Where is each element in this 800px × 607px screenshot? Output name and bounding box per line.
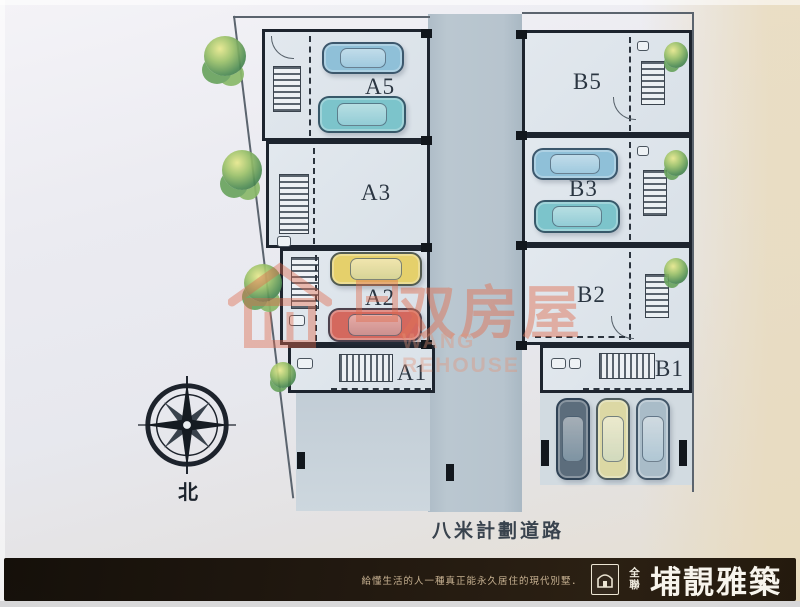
tree-icon xyxy=(664,258,688,284)
car-glass xyxy=(340,48,387,68)
garage-front-line xyxy=(309,36,311,136)
car-icon xyxy=(534,200,620,233)
wall-post xyxy=(421,243,432,252)
garage-front-line xyxy=(313,148,315,244)
garage-front-line xyxy=(315,255,317,341)
car-icon xyxy=(596,398,630,480)
stairs xyxy=(339,354,393,382)
footer-slogan: 給懂生活的人一種真正能永久居住的現代別墅． xyxy=(361,573,582,587)
gate-post xyxy=(297,452,305,469)
brand-name: 埔靚雅築 xyxy=(650,557,782,602)
bath-fixture xyxy=(637,41,649,51)
car-icon xyxy=(556,398,590,480)
wall-post xyxy=(516,241,527,250)
garage-front-line xyxy=(583,388,683,390)
road-label: 八米計劃道路 xyxy=(432,516,564,543)
photo-edge-left xyxy=(0,0,5,607)
bath-fixture xyxy=(277,236,291,247)
gate-post xyxy=(541,440,549,466)
tree-icon xyxy=(664,150,688,176)
bath-fixture xyxy=(569,358,581,369)
wall-post xyxy=(421,29,432,38)
tree-icon xyxy=(270,362,296,388)
stairs xyxy=(641,61,665,105)
photo-edge-top xyxy=(0,0,800,5)
car-icon xyxy=(322,42,404,74)
boundary-line-top xyxy=(233,16,430,18)
car-icon xyxy=(636,398,670,480)
wall-post xyxy=(516,131,527,140)
bath-fixture xyxy=(551,358,566,369)
photo-bottom-strip xyxy=(0,601,800,607)
unit-label: A3 xyxy=(361,180,391,206)
compass-rose-icon xyxy=(138,376,236,474)
wall-post xyxy=(516,30,527,39)
site-plan-photo: { "plan": { "units": [ {"label": "A5"}, … xyxy=(0,0,800,607)
brand-logo-icon xyxy=(591,564,619,595)
unit-A1: A1 xyxy=(288,345,435,393)
bath-fixture xyxy=(289,315,305,326)
wall-post xyxy=(421,136,432,145)
car-glass xyxy=(350,258,403,280)
unit-A3: A3 xyxy=(266,141,430,248)
tree-icon xyxy=(244,264,282,302)
gate-post xyxy=(679,440,687,466)
car-icon xyxy=(532,148,618,180)
driveway-pavement xyxy=(296,393,430,511)
stairs xyxy=(273,66,301,112)
car-glass xyxy=(642,416,664,463)
car-glass xyxy=(337,103,387,127)
car-glass xyxy=(348,314,402,336)
wall-post xyxy=(421,340,432,349)
stairs xyxy=(599,353,655,379)
boundary-line-right xyxy=(692,12,694,492)
garage-front-line xyxy=(535,336,625,338)
car-icon xyxy=(328,308,422,342)
unit-label: B1 xyxy=(655,356,684,382)
unit-B1: B1 xyxy=(540,345,692,393)
compass-north-label: 北 xyxy=(178,476,198,505)
unit-B2: B2 xyxy=(522,245,692,345)
tree-icon xyxy=(204,36,246,76)
stairs xyxy=(279,174,309,234)
footer-bar: 給懂生活的人一種真正能永久居住的現代別墅． 全聯 埔靚雅築 xyxy=(4,558,796,601)
car-glass xyxy=(552,206,601,227)
car-glass xyxy=(550,154,599,174)
car-icon xyxy=(318,96,406,133)
unit-label: B2 xyxy=(577,282,606,308)
door-arc xyxy=(271,36,294,59)
wing-partition-line xyxy=(629,142,631,240)
bath-fixture xyxy=(297,358,313,369)
car-glass xyxy=(602,416,624,463)
boundary-line-top-right xyxy=(522,12,694,14)
gate-post xyxy=(446,464,454,481)
unit-label: A1 xyxy=(397,360,427,386)
car-icon xyxy=(330,252,422,286)
door-arc xyxy=(613,97,636,120)
wall-post xyxy=(516,341,527,350)
planned-road xyxy=(428,14,522,512)
tree-icon xyxy=(222,150,262,190)
bath-fixture xyxy=(637,146,649,156)
stairs xyxy=(643,170,667,216)
stairs xyxy=(645,274,669,318)
brand-logo-caption: 全聯 xyxy=(628,568,641,591)
car-glass xyxy=(562,416,584,463)
garage-front-line xyxy=(331,388,431,390)
unit-label: B5 xyxy=(573,69,602,95)
tree-icon xyxy=(664,42,688,68)
